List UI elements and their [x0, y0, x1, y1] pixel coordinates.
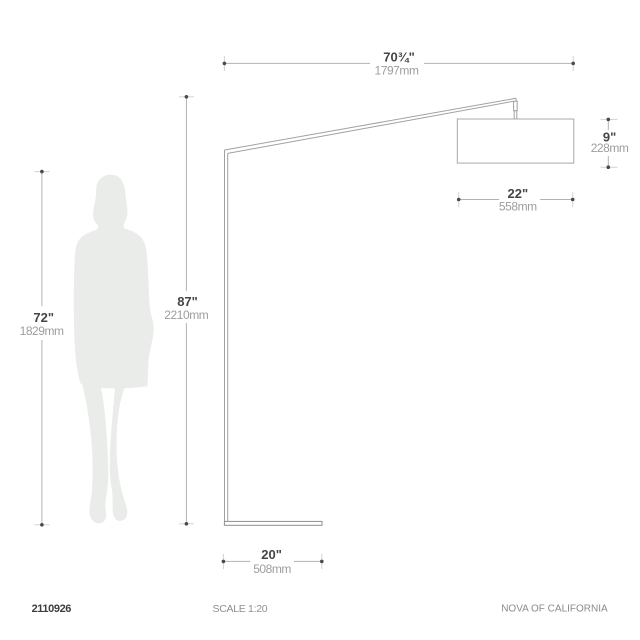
svg-text:228mm: 228mm — [591, 141, 629, 155]
svg-text:72": 72" — [33, 310, 54, 325]
svg-text:70¾": 70¾" — [383, 49, 414, 64]
svg-text:NOVA OF CALIFORNIA: NOVA OF CALIFORNIA — [501, 604, 608, 615]
svg-text:2110926: 2110926 — [32, 603, 72, 615]
svg-text:20": 20" — [261, 547, 282, 562]
svg-text:SCALE 1:20: SCALE 1:20 — [213, 603, 268, 615]
svg-text:508mm: 508mm — [253, 562, 291, 576]
svg-text:1797mm: 1797mm — [375, 64, 419, 78]
svg-text:2210mm: 2210mm — [164, 308, 208, 322]
svg-text:1829mm: 1829mm — [20, 324, 64, 338]
svg-text:87": 87" — [177, 294, 198, 309]
svg-text:558mm: 558mm — [499, 200, 537, 214]
